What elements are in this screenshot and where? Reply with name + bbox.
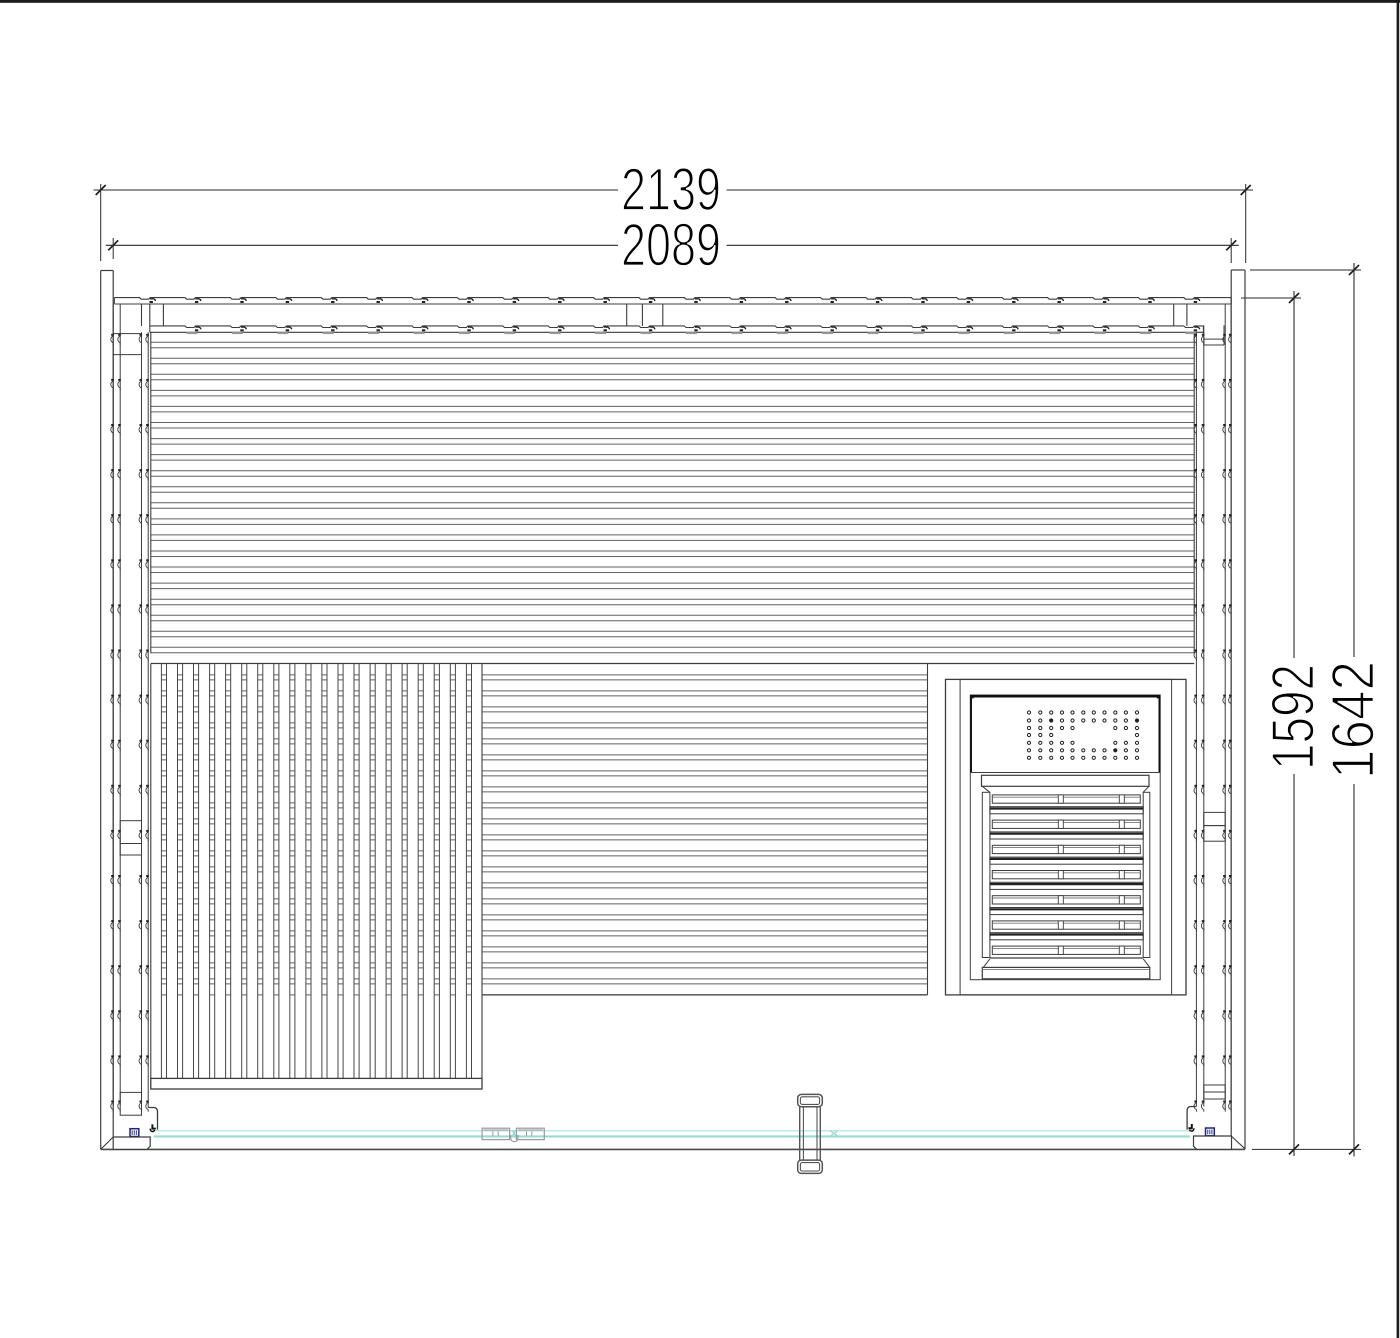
svg-text:1592: 1592 <box>1260 664 1327 770</box>
svg-text:2089: 2089 <box>621 211 721 278</box>
svg-text:1642: 1642 <box>1320 661 1387 779</box>
